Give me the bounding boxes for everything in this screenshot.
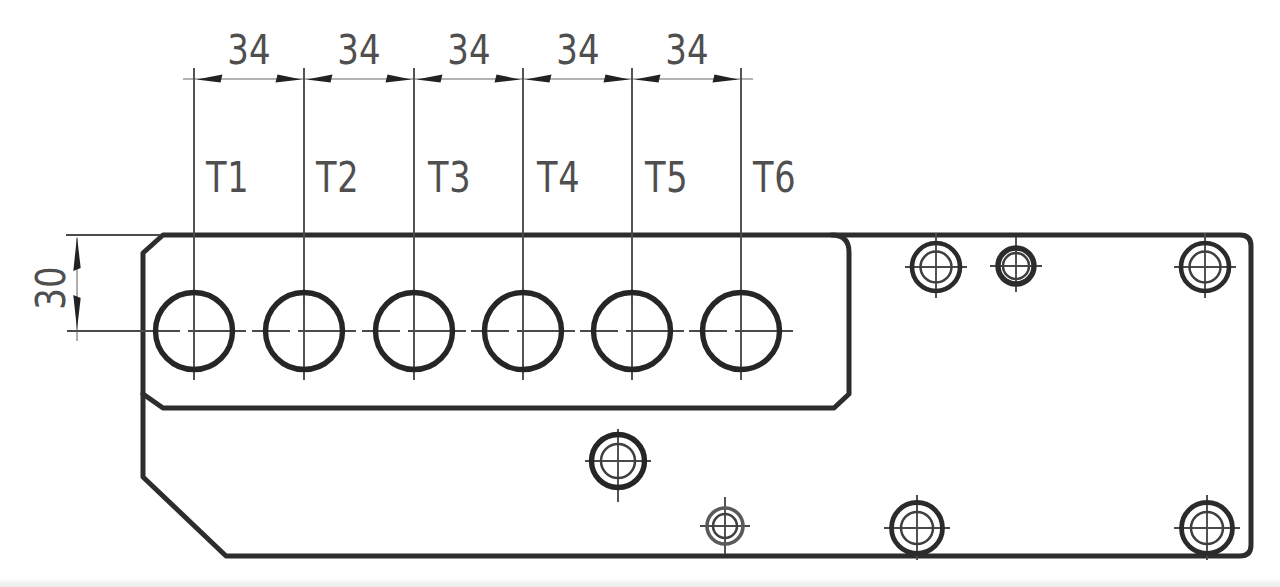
screw-hole-4 (585, 429, 651, 502)
dim-label-34-4: 34 (556, 30, 599, 70)
tool-hole-t4 (471, 68, 575, 380)
dim-label-30: 30 (31, 266, 71, 309)
tool-hole-t1 (67, 68, 246, 380)
dim-label-34-5: 34 (665, 30, 708, 70)
dim30-arrow-up (73, 237, 80, 272)
drawing-linework (0, 0, 1280, 587)
screw-hole-5 (700, 497, 750, 554)
tool-hole-t2 (252, 68, 356, 380)
screw-hole-1 (905, 233, 967, 298)
hole-label-t4: T4 (537, 157, 581, 199)
tool-hole-t3 (362, 68, 466, 380)
dim30-arrow-down (73, 295, 80, 330)
tool-holes-group (67, 68, 793, 380)
screw-hole-2 (990, 237, 1042, 292)
hole-label-t3: T3 (428, 157, 472, 199)
screw-holes-group (585, 233, 1240, 560)
dim-label-34-3: 34 (447, 30, 490, 70)
tool-hole-t5 (580, 68, 684, 380)
screw-hole-7 (1174, 495, 1240, 560)
hole-label-t1: T1 (206, 157, 250, 199)
engineering-drawing-canvas: 34 34 34 34 34 T1 T2 T3 T4 T5 T6 30 (0, 0, 1280, 587)
hole-label-t2: T2 (316, 157, 360, 199)
dim-label-34-2: 34 (337, 30, 380, 70)
dim-label-34-1: 34 (227, 30, 270, 70)
hole-label-t6: T6 (753, 157, 797, 199)
horizontal-dimension-group (183, 75, 753, 83)
screw-hole-6 (884, 495, 950, 560)
scan-edge-shadow (0, 578, 1280, 587)
pocket-outline (143, 235, 849, 408)
screw-hole-3 (1174, 233, 1236, 298)
tool-hole-t6 (689, 68, 793, 380)
hole-label-t5: T5 (645, 157, 689, 199)
plate-outline (143, 235, 1251, 556)
